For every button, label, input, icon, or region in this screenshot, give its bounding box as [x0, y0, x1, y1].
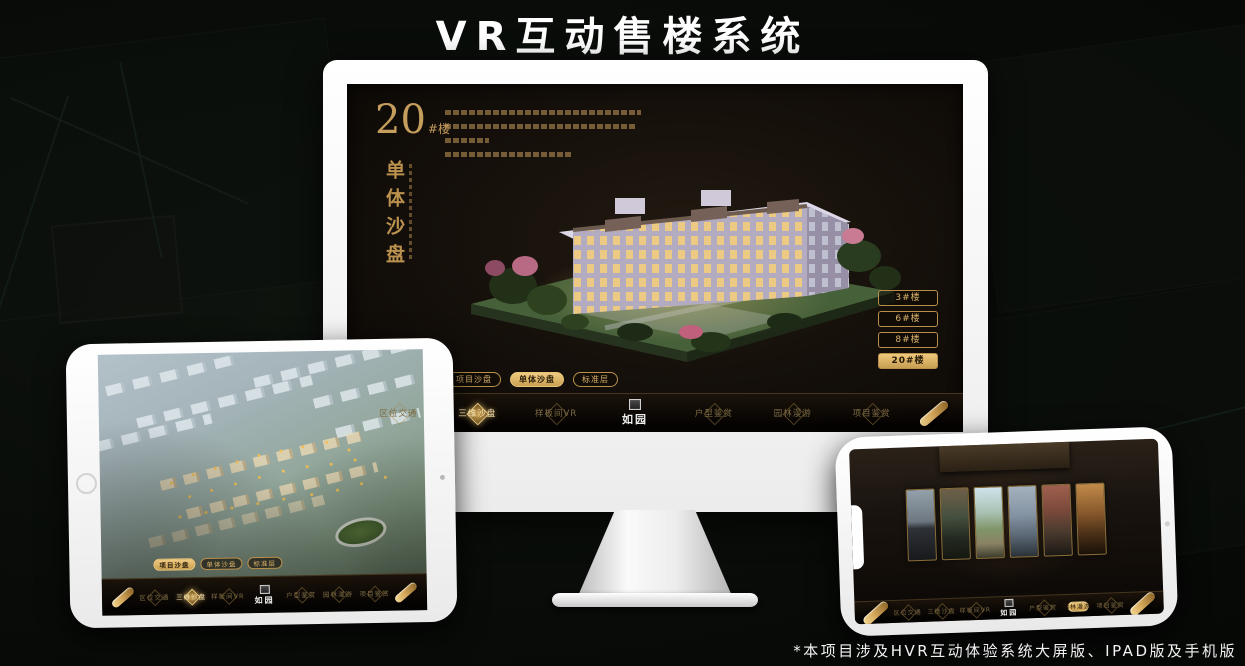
- scroll-ornament-icon: [918, 399, 950, 428]
- subtab-standard-floor[interactable]: 标准层: [573, 372, 618, 387]
- ipad-screen: 项目沙盘 单体沙盘 标准层 区位交通 三维沙盘 样板间VR 如园 户型鉴赏 园林…: [98, 349, 428, 616]
- subtab-project-sandbox[interactable]: 项目沙盘: [153, 558, 195, 571]
- nav-item-floorplans[interactable]: 户型鉴赏: [283, 589, 320, 600]
- gallery-card[interactable]: [1007, 485, 1038, 558]
- camera-icon: [440, 475, 445, 480]
- gallery-cards: [851, 481, 1162, 564]
- seal-icon: [629, 399, 641, 410]
- nav-item-model-room-vr[interactable]: 样板间VR: [517, 407, 596, 419]
- phone-screen: 区位交通 三维沙盘 样板间VR 如园 户型鉴赏 园林漫游 项目鉴赏: [849, 439, 1164, 625]
- gallery-card[interactable]: [1075, 483, 1106, 556]
- building-render: [455, 136, 907, 380]
- floor-button-20[interactable]: 20#楼: [878, 353, 938, 369]
- nav-item-project-gallery[interactable]: 项目鉴赏: [1094, 599, 1128, 609]
- section-title-vertical: 单体沙盘: [381, 160, 408, 272]
- floor-button-8[interactable]: 8#楼: [878, 332, 938, 348]
- bg-plaque: [51, 215, 183, 324]
- section-subtitle-decor: [409, 164, 412, 260]
- aerial-buildings: [136, 375, 313, 428]
- nav-item-floorplans[interactable]: 户型鉴赏: [674, 407, 753, 419]
- subtab-single-sandbox[interactable]: 单体沙盘: [200, 557, 242, 570]
- nav-item-model-room-vr[interactable]: 样板间VR: [958, 604, 992, 614]
- footnote-text: *本项目涉及HVR互动体验系统大屏版、IPAD版及手机版: [793, 640, 1237, 661]
- phone-device: 区位交通 三维沙盘 样板间VR 如园 户型鉴赏 园林漫游 项目鉴赏: [835, 426, 1179, 637]
- ipad-device: 项目沙盘 单体沙盘 标准层 区位交通 三维沙盘 样板间VR 如园 户型鉴赏 园林…: [66, 338, 458, 629]
- seal-icon: [259, 584, 269, 593]
- bg-photo-fragment: [964, 19, 1245, 313]
- nav-item-location[interactable]: 区位交通: [891, 606, 925, 616]
- aerial-buildings: [253, 349, 411, 388]
- gallery-card[interactable]: [1041, 484, 1072, 557]
- seal-icon: [1004, 598, 1013, 606]
- brand-logo: 如园: [246, 584, 283, 606]
- scroll-ornament-icon: [394, 581, 419, 604]
- subtab-single-sandbox[interactable]: 单体沙盘: [510, 372, 564, 387]
- nav-item-floorplans[interactable]: 户型鉴赏: [1026, 602, 1060, 612]
- nav-item-model-room-vr[interactable]: 样板间VR: [209, 590, 246, 601]
- nav-item-location[interactable]: 区位交通: [136, 592, 173, 603]
- brand-logo: 如园: [992, 598, 1027, 618]
- subtab-standard-floor[interactable]: 标准层: [247, 557, 282, 570]
- aerial-residences: [159, 431, 361, 491]
- stage: VR互动售楼系统 20#楼 单体沙盘: [0, 0, 1245, 666]
- building-number: 20: [375, 97, 426, 143]
- stadium: [332, 513, 389, 552]
- home-button[interactable]: [76, 473, 97, 494]
- phone-nav-bar: 区位交通 三维沙盘 样板间VR 如园 户型鉴赏 园林漫游 项目鉴赏: [854, 591, 1164, 625]
- floor-button-6[interactable]: 6#楼: [878, 311, 938, 327]
- brand-logo: 如园: [596, 399, 675, 427]
- aerial-residences: [186, 462, 379, 519]
- page-title: VR互动售楼系统: [0, 4, 1245, 62]
- floor-button-3[interactable]: 3#楼: [878, 290, 938, 306]
- monitor-stand: [578, 510, 732, 596]
- gallery-card[interactable]: [905, 488, 936, 561]
- scroll-ornament-icon: [111, 586, 136, 609]
- nav-item-garden-roam[interactable]: 园林漫游: [319, 588, 356, 599]
- monitor-subtabs: 项目沙盘 单体沙盘 标准层: [447, 372, 618, 387]
- aerial-buildings: [105, 353, 243, 397]
- nav-item-project-gallery[interactable]: 项目鉴赏: [356, 588, 393, 599]
- gallery-card[interactable]: [973, 486, 1004, 559]
- monitor-stand-base: [552, 593, 758, 607]
- description-text-line: [445, 124, 635, 129]
- camera-icon: [1165, 521, 1170, 526]
- scroll-ornament-icon: [1128, 590, 1156, 617]
- phone-notch: [851, 505, 864, 569]
- nav-item-3d-sandbox[interactable]: 三维沙盘: [173, 591, 210, 602]
- scroll-ornament-icon: [862, 599, 890, 624]
- floor-button-group: 3#楼 6#楼 8#楼 20#楼: [878, 290, 938, 369]
- ipad-nav-bar: 区位交通 三维沙盘 样板间VR 如园 户型鉴赏 园林漫游 项目鉴赏: [102, 573, 428, 616]
- gallery-card[interactable]: [939, 487, 970, 560]
- description-text-line: [445, 110, 641, 115]
- nav-item-garden-roam[interactable]: 园林漫游: [753, 407, 832, 419]
- aerial-buildings: [98, 414, 213, 453]
- building-headline: 20#楼: [375, 100, 450, 140]
- ipad-subtabs: 项目沙盘 单体沙盘 标准层: [153, 557, 282, 571]
- building-number-markers: [170, 482, 173, 485]
- nav-item-project-gallery[interactable]: 项目鉴赏: [832, 407, 911, 419]
- aerial-residences: [148, 495, 325, 548]
- subtab-project-sandbox[interactable]: 项目沙盘: [447, 372, 501, 387]
- nav-item-garden-roam[interactable]: 园林漫游: [1060, 601, 1094, 611]
- nav-item-3d-sandbox[interactable]: 三维沙盘: [924, 605, 958, 615]
